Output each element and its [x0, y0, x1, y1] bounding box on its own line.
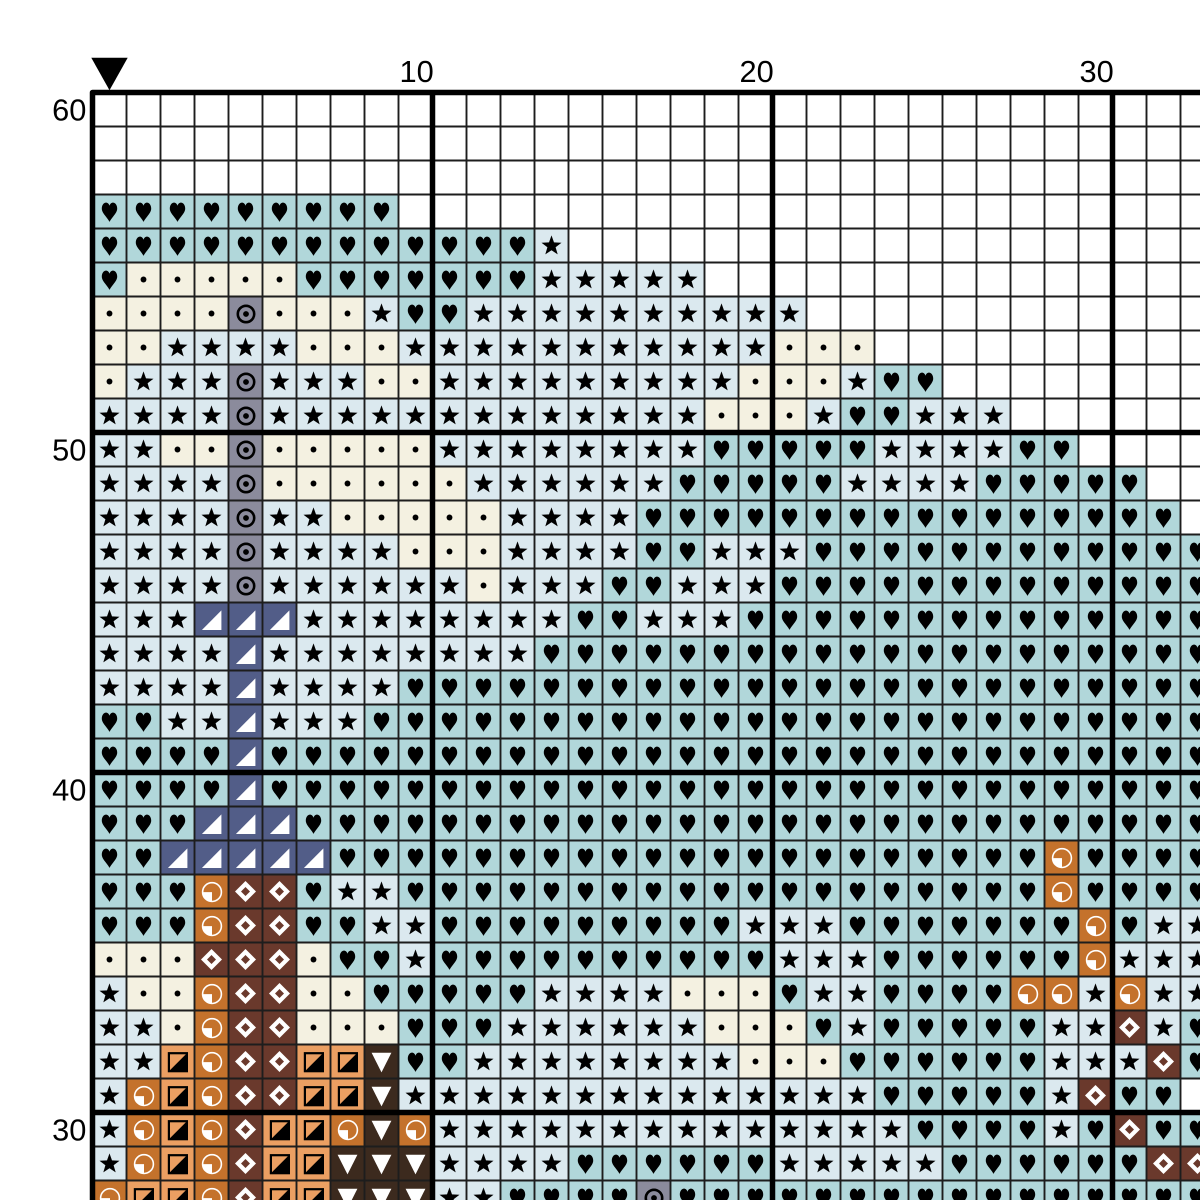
svg-text:20: 20: [740, 54, 774, 89]
svg-text:30: 30: [52, 1113, 86, 1148]
svg-text:30: 30: [1080, 54, 1114, 89]
svg-text:40: 40: [52, 773, 86, 808]
svg-text:50: 50: [52, 433, 86, 468]
svg-text:10: 10: [400, 54, 434, 89]
svg-text:60: 60: [52, 93, 86, 128]
